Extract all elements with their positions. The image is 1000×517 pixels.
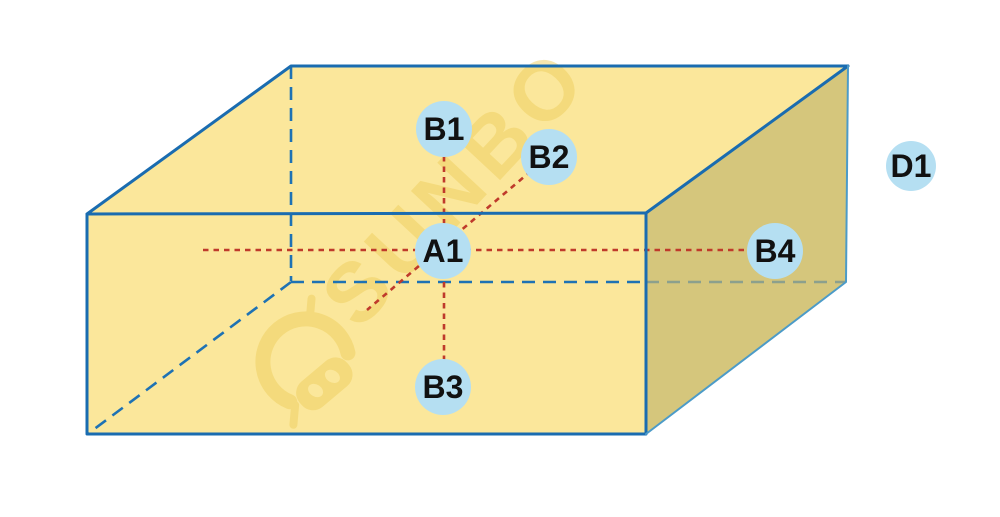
point-label-d1: D1 [891, 148, 932, 184]
point-label-b3: B3 [423, 369, 464, 405]
point-marker-a1: A1 [415, 223, 471, 279]
point-label-b4: B4 [755, 233, 796, 269]
point-marker-d1: D1 [886, 141, 936, 191]
point-label-a1: A1 [423, 233, 464, 269]
point-marker-b2: B2 [521, 129, 577, 185]
point-marker-b4: B4 [747, 223, 803, 279]
box-diagram: SUNBO [0, 0, 1000, 517]
point-marker-b3: B3 [415, 359, 471, 415]
point-label-b1: B1 [424, 111, 465, 147]
diagram-canvas: SUNBO [0, 0, 1000, 517]
point-label-b2: B2 [529, 139, 570, 175]
point-marker-b1: B1 [416, 101, 472, 157]
